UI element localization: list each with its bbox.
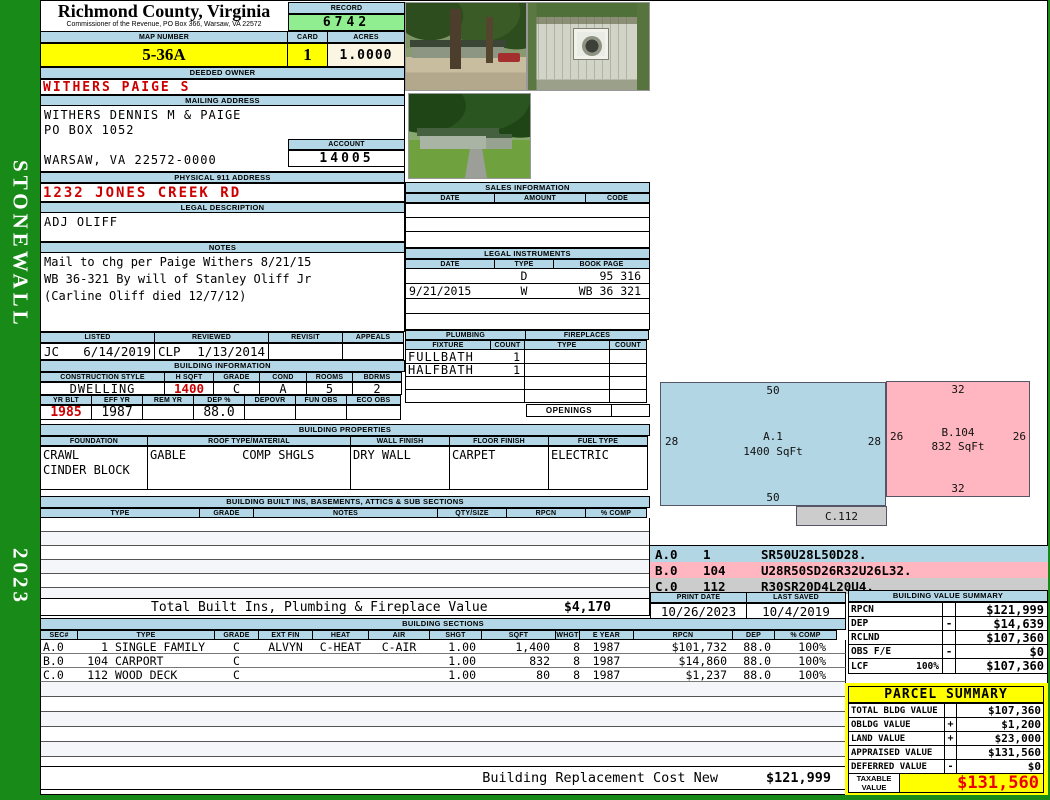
sketch-code-row: B.0 104 U28R50SD26R32U26L32. <box>650 562 1048 578</box>
bvs-row: RPCN $121,999 <box>848 602 1048 617</box>
plumbing-fixture: HALFBATH <box>405 363 491 377</box>
dates-value-row: 10/26/2023 10/4/2019 <box>650 603 846 619</box>
fuel-type-label: FUEL TYPE <box>548 436 648 446</box>
bs-comp: 100% <box>774 640 834 653</box>
dates-header-row: PRINT DATE LAST SAVED <box>650 592 846 603</box>
floor-finish-label: FLOOR FINISH <box>449 436 549 446</box>
replacement-cost-value: $121,999 <box>766 770 831 786</box>
li-r2-date: 9/21/2015 <box>405 283 495 299</box>
eff-yr-label: EFF YR <box>91 395 143 405</box>
taxable-value-label: TAXABLE VALUE <box>848 773 900 793</box>
sketch-codes: A.0 1 SR50U28L50D28. B.0 104 U28R50SD26R… <box>650 545 1048 593</box>
county-header: Richmond County, Virginia Commissioner o… <box>40 1 288 30</box>
plumbing-count <box>490 376 525 390</box>
bs-eyear: 1987 <box>579 668 634 681</box>
built-ins-empty-rows <box>40 518 650 598</box>
sketch-a-label: A.1 <box>661 430 885 443</box>
bs-grade: C <box>214 668 259 681</box>
bs-num: 104 <box>78 654 108 667</box>
notes-label: NOTES <box>40 242 405 253</box>
bvs-op <box>942 658 956 674</box>
appeals-cell <box>342 343 404 360</box>
bi-type-label: TYPE <box>40 508 200 518</box>
card-number: 1 <box>287 43 328 67</box>
building-sections-empty-rows <box>40 682 846 766</box>
sidebar: STONEWALL 2023 <box>0 0 40 800</box>
li-r1-bookpage: 95 316 <box>553 269 650 284</box>
bs-sec: B.0 <box>41 654 79 667</box>
li-bookpage-label: BOOK PAGE <box>553 259 650 269</box>
record-label: RECORD <box>288 2 405 14</box>
construction-style: DWELLING <box>40 382 165 395</box>
parcel-row: APPRAISED VALUE $131,560 <box>848 745 1044 760</box>
sales-information-label: SALES INFORMATION <box>405 182 650 193</box>
sketch-code-row: A.0 1 SR50U28L50D28. <box>650 546 1048 562</box>
rooms: 5 <box>306 382 353 395</box>
bi-notes-label: NOTES <box>253 508 438 518</box>
sketch-a-sqft: 1400 SqFt <box>661 445 885 458</box>
code-num: 1 <box>703 547 761 562</box>
bvs-name-cell: DEP <box>848 616 943 631</box>
bvs-name-cell: LCF 100% <box>848 658 943 674</box>
bvs-row: OBS F/E - $0 <box>848 644 1048 659</box>
sales-header-row: DATE AMOUNT CODE <box>405 193 650 203</box>
building-information-label: BUILDING INFORMATION <box>40 360 405 372</box>
dep-pct: 88.0 <box>193 405 245 420</box>
parcel-value: $0 <box>956 759 1044 774</box>
mailing-line3: WARSAW, VA 22572-0000 <box>44 153 217 167</box>
sales-row-empty <box>405 203 650 218</box>
bs-eyear: 1987 <box>579 654 634 667</box>
listed-date: 6/14/2019 <box>83 344 151 359</box>
bs-type: WOOD DECK <box>107 668 215 681</box>
photo3-driveway <box>465 149 487 178</box>
legal-instruments-header-row: DATE TYPE BOOK PAGE <box>405 259 650 269</box>
legal-description-block: ADJ OLIFF <box>40 213 405 242</box>
parcel-name: APPRAISED VALUE <box>848 745 945 760</box>
wall-finish-label: WALL FINISH <box>350 436 450 446</box>
building-section-row: B.0 104 CARPORT C 1.00 832 8 1987 $14,86… <box>40 654 846 668</box>
plumbing-fireplaces-header-row: FIXTURE COUNT TYPE COUNT <box>405 340 650 350</box>
bs-grade-label: GRADE <box>214 630 259 640</box>
bvs-name: LCF <box>851 661 868 672</box>
li-r2-type: W <box>494 283 554 299</box>
cond-label: COND <box>259 372 307 382</box>
code-num: 104 <box>703 563 761 578</box>
roof-material: COMP SHGLS <box>242 448 314 462</box>
yr-blt: 1985 <box>40 405 92 420</box>
parcel-row: LAND VALUE + $23,000 <box>848 731 1044 746</box>
notes-line2: WB 36-321 By will of Stanley Oliff Jr <box>44 272 311 286</box>
sketch-a-dim-top: 50 <box>661 384 885 397</box>
building-sections-header-row: SEC# TYPE GRADE EXT FIN HEAT AIR SHGT SQ… <box>40 630 846 640</box>
legal-instrument-row-empty <box>405 298 650 314</box>
bs-heat <box>312 654 369 667</box>
map-number: 5-36A <box>40 43 288 67</box>
reviewed-date: 1/13/2014 <box>197 344 265 359</box>
reviewed-label: REVIEWED <box>154 332 269 343</box>
photo1-red-car <box>498 53 520 62</box>
appeals-label: APPEALS <box>342 332 404 343</box>
li-date-label: DATE <box>405 259 495 269</box>
account-number: 14005 <box>288 150 405 167</box>
bs-heat-label: HEAT <box>312 630 369 640</box>
bs-rpcn-label: RPCN <box>633 630 733 640</box>
bs-air <box>368 654 430 667</box>
bvs-value: $0 <box>955 644 1048 659</box>
li-r1-date <box>405 269 495 284</box>
sales-row-empty <box>405 217 650 232</box>
sketch-b-dim-top: 32 <box>887 383 1029 396</box>
notes-block: Mail to chg per Paige Withers 8/21/15 WB… <box>40 253 405 332</box>
sketch-b-dim-bottom: 32 <box>887 482 1029 495</box>
bs-dep: 88.0 <box>732 640 775 653</box>
bvs-op <box>942 630 956 645</box>
fuel-type: ELECTRIC <box>548 446 648 490</box>
bs-type: CARPORT <box>107 654 215 667</box>
rooms-label: ROOMS <box>306 372 353 382</box>
bs-air <box>368 668 430 681</box>
tax-year-label: 2023 <box>8 548 33 606</box>
legal-instrument-row: 9/21/2015 W WB 36 321 <box>405 283 650 299</box>
bs-num: 112 <box>78 668 108 681</box>
bs-dep: 88.0 <box>732 654 775 667</box>
photo2-fan <box>582 36 602 56</box>
depovr-label: DEPOVR <box>244 395 296 405</box>
sketch-section-c: C.112 <box>796 506 887 526</box>
bs-whgt: 8 <box>555 640 580 653</box>
building-info-value-row-2: 1985 1987 88.0 <box>40 405 405 420</box>
photo3-house-wall <box>420 136 486 149</box>
bs-shgt: 1.00 <box>429 668 482 681</box>
bvs-name: RPCN <box>851 604 874 615</box>
wall-finish: DRY WALL <box>350 446 450 490</box>
foundation-line1: CRAWL <box>43 448 130 463</box>
plumbing-fixture <box>405 389 491 403</box>
grade: C <box>213 382 260 395</box>
plumbing-count: 1 <box>490 363 525 377</box>
fireplace-type-cell <box>524 350 610 364</box>
rem-yr-label: REM YR <box>142 395 194 405</box>
district-label: STONEWALL <box>8 160 33 329</box>
taxable-value: $131,560 <box>899 773 1044 793</box>
sales-date-label: DATE <box>405 193 495 203</box>
bs-grade: C <box>214 654 259 667</box>
fun-obs <box>295 405 347 420</box>
parcel-value: $23,000 <box>956 731 1044 746</box>
bs-sqft: 1,400 <box>481 640 556 653</box>
print-date: 10/26/2023 <box>650 603 747 619</box>
fireplaces-label: FIREPLACES <box>525 330 649 340</box>
bvs-op: - <box>942 644 956 659</box>
photo1-tree-trunk-2 <box>486 17 493 63</box>
bi-comp-label: % COMP <box>585 508 647 518</box>
plumbing-row-empty <box>405 376 650 390</box>
bvs-name: RCLND <box>851 632 880 643</box>
legal-description: ADJ OLIFF <box>44 215 118 229</box>
parcel-value: $107,360 <box>956 703 1044 718</box>
fireplace-count-label: COUNT <box>609 340 647 350</box>
fireplace-count-cell <box>609 376 647 390</box>
code-path: U28R50SD26R32U26L32. <box>761 563 912 578</box>
legal-instrument-row: D 95 316 <box>405 269 650 284</box>
bs-type-label: TYPE <box>77 630 215 640</box>
building-section-row: A.0 1 SINGLE FAMILY C ALVYN C-HEAT C-AIR… <box>40 640 846 654</box>
notes-line3: (Carline Oliff died 12/7/12) <box>44 289 246 303</box>
parcel-taxable-row: TAXABLE VALUE $131,560 <box>848 773 1044 793</box>
parcel-row: TOTAL BLDG VALUE $107,360 <box>848 703 1044 718</box>
last-saved-label: LAST SAVED <box>746 592 846 603</box>
bdrms-label: BDRMS <box>352 372 402 382</box>
hsqft: 1400 <box>164 382 214 395</box>
bvs-row: DEP - $14,639 <box>848 616 1048 631</box>
roof-type: GABLE <box>150 448 186 462</box>
review-value-row: JC 6/14/2019 CLP 1/13/2014 <box>40 343 405 360</box>
bs-rpcn: $14,860 <box>633 654 733 667</box>
property-photo-outbuilding <box>527 2 650 91</box>
built-ins-label: BUILDING BUILT INS, BASEMENTS, ATTICS & … <box>40 496 650 508</box>
bs-air: C-AIR <box>368 640 430 653</box>
bs-type: SINGLE FAMILY <box>107 640 215 653</box>
parcel-name: LAND VALUE <box>848 731 945 746</box>
building-value-summary-label: BUILDING VALUE SUMMARY <box>848 590 1048 602</box>
floor-finish: CARPET <box>449 446 549 490</box>
acres-label: ACRES <box>327 31 405 43</box>
physical-address-label: PHYSICAL 911 ADDRESS <box>40 172 405 183</box>
bs-rpcn: $1,237 <box>633 668 733 681</box>
bvs-name-cell: RPCN <box>848 602 943 617</box>
map-card-acres-value-row: 5-36A 1 1.0000 <box>40 43 405 67</box>
bi-rpcn-label: RPCN <box>506 508 586 518</box>
plumbing-row-empty <box>405 389 650 403</box>
eff-yr: 1987 <box>91 405 143 420</box>
openings-label: OPENINGS <box>526 404 612 417</box>
bs-sqft: 80 <box>481 668 556 681</box>
legal-instruments-label: LEGAL INSTRUMENTS <box>405 248 650 259</box>
bvs-value: $14,639 <box>955 616 1048 631</box>
property-photo-street-view <box>405 2 527 91</box>
bs-comp: 100% <box>774 668 834 681</box>
bs-whgt: 8 <box>555 654 580 667</box>
revisit-label: REVISIT <box>268 332 343 343</box>
bs-grade: C <box>214 640 259 653</box>
sales-row-empty <box>405 231 650 248</box>
building-sketch: 50 28 28 A.1 1400 SqFt 50 32 26 26 B.104… <box>652 378 1048 538</box>
legal-description-label: LEGAL DESCRIPTION <box>40 202 405 213</box>
physical-address: 1232 JONES CREEK RD <box>40 183 405 202</box>
revisit-cell <box>268 343 343 360</box>
fixture-label: FIXTURE <box>405 340 491 350</box>
bs-heat: C-HEAT <box>312 640 369 653</box>
eco-obs-label: ECO OBS <box>346 395 401 405</box>
eco-obs <box>346 405 401 420</box>
bs-shgt: 1.00 <box>429 640 482 653</box>
fireplace-type-label: TYPE <box>524 340 610 350</box>
cond: A <box>259 382 307 395</box>
bs-sqft-label: SQFT <box>481 630 556 640</box>
bdrms: 2 <box>352 382 402 395</box>
bvs-row: RCLND $107,360 <box>848 630 1048 645</box>
fixture-count-label: COUNT <box>490 340 525 350</box>
li-type-label: TYPE <box>494 259 554 269</box>
openings-count-cell <box>611 404 650 417</box>
mailing-address-label: MAILING ADDRESS <box>40 95 405 106</box>
sketch-b-label: B.104 <box>887 426 1029 439</box>
sketch-a-dim-bottom: 50 <box>661 491 885 504</box>
listed-by: JC <box>44 344 59 359</box>
bs-sec: C.0 <box>41 668 79 681</box>
last-saved: 10/4/2019 <box>746 603 846 619</box>
built-ins-header-row: TYPE GRADE NOTES QTY/SIZE RPCN % COMP <box>40 508 650 518</box>
legal-instrument-row-empty <box>405 313 650 330</box>
map-card-acres-header-row: MAP NUMBER CARD ACRES <box>40 31 405 43</box>
bvs-row: LCF 100% $107,360 <box>848 658 1048 674</box>
li-r1-type: D <box>494 269 554 284</box>
bs-air-label: AIR <box>368 630 430 640</box>
built-ins-total-value: $4,170 <box>564 600 611 615</box>
reviewed-cell: CLP 1/13/2014 <box>154 343 269 360</box>
bs-sec: A.0 <box>41 640 79 653</box>
bs-whgt-label: WHGT <box>555 630 580 640</box>
bvs-name: DEP <box>851 618 868 629</box>
plumbing-count <box>490 389 525 403</box>
bvs-value: $121,999 <box>955 602 1048 617</box>
bvs-name: OBS F/E <box>851 646 891 657</box>
bvs-op: - <box>942 616 956 631</box>
photo1-tree-trunk <box>450 9 461 69</box>
parcel-summary-label: PARCEL SUMMARY <box>848 686 1044 703</box>
dep-pct-label: DEP % <box>193 395 245 405</box>
commissioner-line: Commissioner of the Revenue, PO Box 366,… <box>40 21 288 29</box>
fireplace-type-cell <box>524 363 610 377</box>
plumbing-fireplaces-band: PLUMBING FIREPLACES <box>405 330 650 340</box>
print-date-label: PRINT DATE <box>650 592 747 603</box>
plumbing-label: PLUMBING <box>405 330 526 340</box>
property-photo-front-lawn <box>408 93 531 179</box>
deeded-owner: WITHERS PAIGE S <box>40 79 405 95</box>
fireplace-type-cell <box>524 389 610 403</box>
record-number: 6742 <box>288 14 405 31</box>
bs-sec-label: SEC# <box>40 630 78 640</box>
building-properties-label: BUILDING PROPERTIES <box>40 424 650 436</box>
code-sec: A.0 <box>650 547 703 562</box>
mailing-line2: PO BOX 1052 <box>44 123 134 137</box>
bvs-pct: 100% <box>916 661 942 672</box>
photo3-carport <box>486 134 512 149</box>
bs-extfin <box>258 668 313 681</box>
fireplace-type-cell <box>524 376 610 390</box>
parcel-name: OBLDG VALUE <box>848 717 945 732</box>
building-sections-label: BUILDING SECTIONS <box>40 618 846 630</box>
building-section-row: C.0 112 WOOD DECK C 1.00 80 8 1987 $1,23… <box>40 668 846 682</box>
li-r2-bookpage: WB 36 321 <box>553 283 650 299</box>
bvs-value: $107,360 <box>955 630 1048 645</box>
parcel-name: TOTAL BLDG VALUE <box>848 703 945 718</box>
building-properties-header-row: FOUNDATION ROOF TYPE/MATERIAL WALL FINIS… <box>40 436 650 446</box>
parcel-value: $131,560 <box>956 745 1044 760</box>
bs-eyear: 1987 <box>579 640 634 653</box>
bs-heat <box>312 668 369 681</box>
fireplace-count-cell <box>609 350 647 364</box>
bs-shgt: 1.00 <box>429 654 482 667</box>
bs-eyear-label: E YEAR <box>579 630 634 640</box>
listed-label: LISTED <box>40 332 155 343</box>
parcel-summary-panel: PARCEL SUMMARY TOTAL BLDG VALUE $107,360… <box>845 683 1048 795</box>
acres-value: 1.0000 <box>327 43 405 67</box>
foundation-line2: CINDER BLOCK <box>43 463 130 478</box>
roof-label: ROOF TYPE/MATERIAL <box>147 436 351 446</box>
bs-rpcn: $101,732 <box>633 640 733 653</box>
plumbing-row: HALFBATH 1 <box>405 363 650 377</box>
building-info-header-row-2: YR BLT EFF YR REM YR DEP % DEPOVR FUN OB… <box>40 395 405 405</box>
reviewed-by: CLP <box>158 344 181 359</box>
sketch-b-sqft: 832 SqFt <box>887 440 1029 453</box>
code-sec: B.0 <box>650 563 703 578</box>
parcel-value: $1,200 <box>956 717 1044 732</box>
yr-blt-label: YR BLT <box>40 395 92 405</box>
card-label: CARD <box>287 31 328 43</box>
bvs-op <box>942 602 956 617</box>
foundation-cell: CRAWL CINDER BLOCK <box>40 446 148 490</box>
bi-grade-label: GRADE <box>199 508 254 518</box>
bvs-name-cell: RCLND <box>848 630 943 645</box>
bs-whgt: 8 <box>555 668 580 681</box>
parcel-row: OBLDG VALUE + $1,200 <box>848 717 1044 732</box>
bvs-value: $107,360 <box>955 658 1048 674</box>
bs-sqft: 832 <box>481 654 556 667</box>
replacement-cost-row: Building Replacement Cost New $121,999 <box>40 766 846 790</box>
sales-code-label: CODE <box>585 193 650 203</box>
bs-extfin: ALVYN <box>258 640 313 653</box>
grade-label: GRADE <box>213 372 260 382</box>
bvs-name-cell: OBS F/E <box>848 644 943 659</box>
foundation-label: FOUNDATION <box>40 436 148 446</box>
notes-line1: Mail to chg per Paige Withers 8/21/15 <box>44 255 311 269</box>
building-properties-value-row: CRAWL CINDER BLOCK GABLE COMP SHGLS DRY … <box>40 446 650 490</box>
review-header-row: LISTED REVIEWED REVISIT APPEALS <box>40 332 405 343</box>
parcel-row: DEFERRED VALUE - $0 <box>848 759 1044 774</box>
bs-extfin-label: EXT FIN <box>258 630 313 640</box>
fun-obs-label: FUN OBS <box>295 395 347 405</box>
bi-qty-label: QTY/SIZE <box>437 508 507 518</box>
bs-dep: 88.0 <box>732 668 775 681</box>
rem-yr <box>142 405 194 420</box>
replacement-cost-label: Building Replacement Cost New <box>482 770 718 786</box>
parcel-name: DEFERRED VALUE <box>848 759 945 774</box>
code-path: SR50U28L50D28. <box>761 547 866 562</box>
fireplace-count-cell <box>609 389 647 403</box>
bs-shgt-label: SHGT <box>429 630 482 640</box>
county-title: Richmond County, Virginia <box>40 1 288 21</box>
mailing-line1: WITHERS DENNIS M & PAIGE <box>44 108 241 122</box>
depovr <box>244 405 296 420</box>
deeded-owner-label: DEEDED OWNER <box>40 67 405 79</box>
property-record-card: STONEWALL 2023 Richmond County, Virginia… <box>0 0 1050 800</box>
account-label: ACCOUNT <box>288 139 405 150</box>
building-info-value-row-1: DWELLING 1400 C A 5 2 <box>40 382 405 395</box>
bs-extfin <box>258 654 313 667</box>
sketch-c-label: C.112 <box>797 510 886 523</box>
bs-dep-label: DEP <box>732 630 775 640</box>
bs-comp: 100% <box>774 654 834 667</box>
sketch-section-a: 50 28 28 A.1 1400 SqFt 50 <box>660 382 886 506</box>
construction-style-label: CONSTRUCTION STYLE <box>40 372 165 382</box>
bs-comp-label: % COMP <box>774 630 837 640</box>
fireplace-count-cell <box>609 363 647 377</box>
map-number-label: MAP NUMBER <box>40 31 288 43</box>
plumbing-fixture <box>405 376 491 390</box>
built-ins-total-label: Total Built Ins, Plumbing & Fireplace Va… <box>151 600 488 615</box>
